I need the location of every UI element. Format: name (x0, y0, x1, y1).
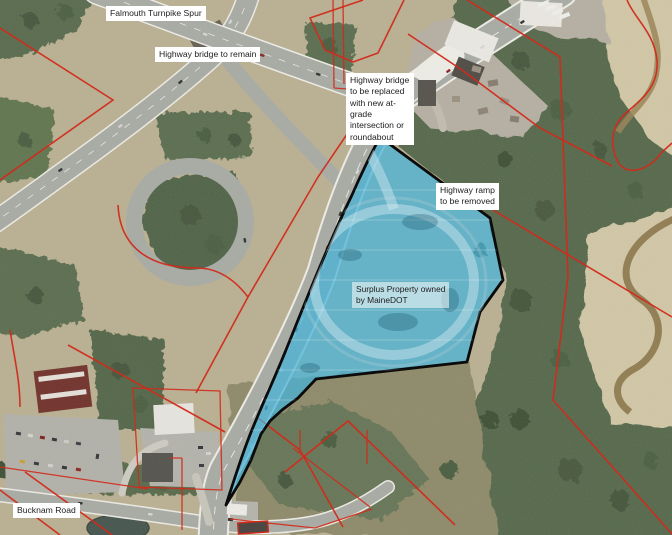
label-highway-bridge-to-be-replaced: Highway bridge to be replaced with new a… (346, 73, 414, 145)
label-falmouth-turnpike-spur: Falmouth Turnpike Spur (106, 6, 206, 21)
aerial-map (0, 0, 672, 535)
outlined-building (238, 521, 269, 534)
label-surplus-property: Surplus Property owned by MaineDOT (352, 282, 449, 308)
label-highway-ramp-to-be-removed: Highway ramp to be removed (436, 183, 499, 210)
label-bucknam-road: Bucknam Road (13, 503, 80, 518)
label-highway-bridge-to-remain: Highway bridge to remain (155, 47, 260, 62)
map-figure: Falmouth Turnpike Spur Highway bridge to… (0, 0, 672, 535)
